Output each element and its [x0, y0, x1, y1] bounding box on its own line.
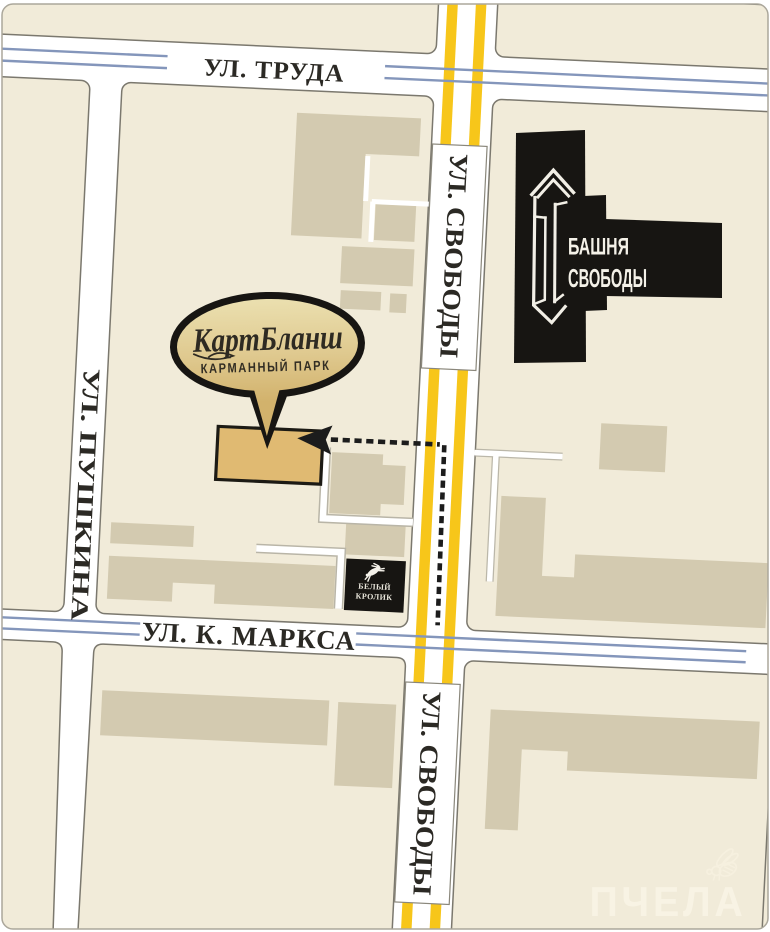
svg-text:КРОЛИК: КРОЛИК	[355, 591, 392, 602]
svg-text:БАШНЯ: БАШНЯ	[568, 234, 629, 261]
svg-text:БЕЛЫЙ: БЕЛЫЙ	[358, 582, 391, 592]
svg-text:СВОБОДЫ: СВОБОДЫ	[568, 263, 647, 293]
svg-text:ПЧЕЛА: ПЧЕЛА	[590, 878, 747, 925]
svg-text:КАРМАННЫЙ ПАРК: КАРМАННЫЙ ПАРК	[200, 357, 330, 376]
